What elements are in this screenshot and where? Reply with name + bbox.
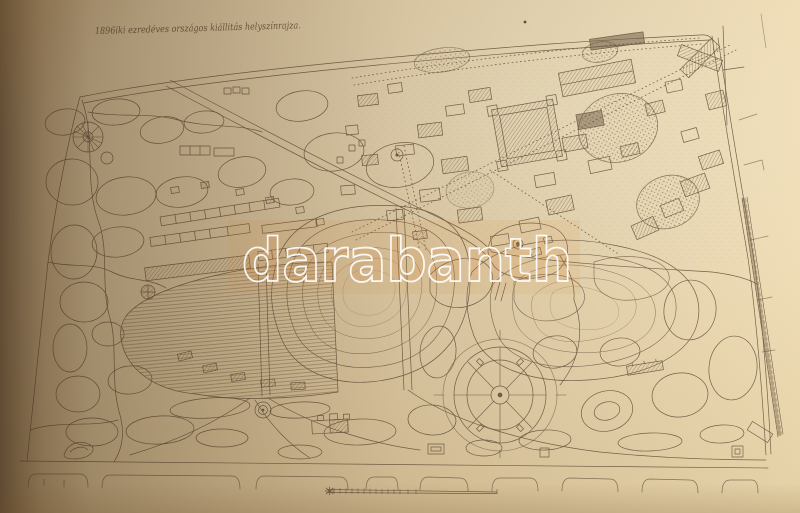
map-photo: 1896iki ezredéves országos kiállitás hel…	[0, 0, 800, 513]
ink-fleck	[524, 21, 527, 24]
watermark: darabanth	[228, 220, 580, 296]
watermark-text: darabanth	[242, 226, 572, 296]
